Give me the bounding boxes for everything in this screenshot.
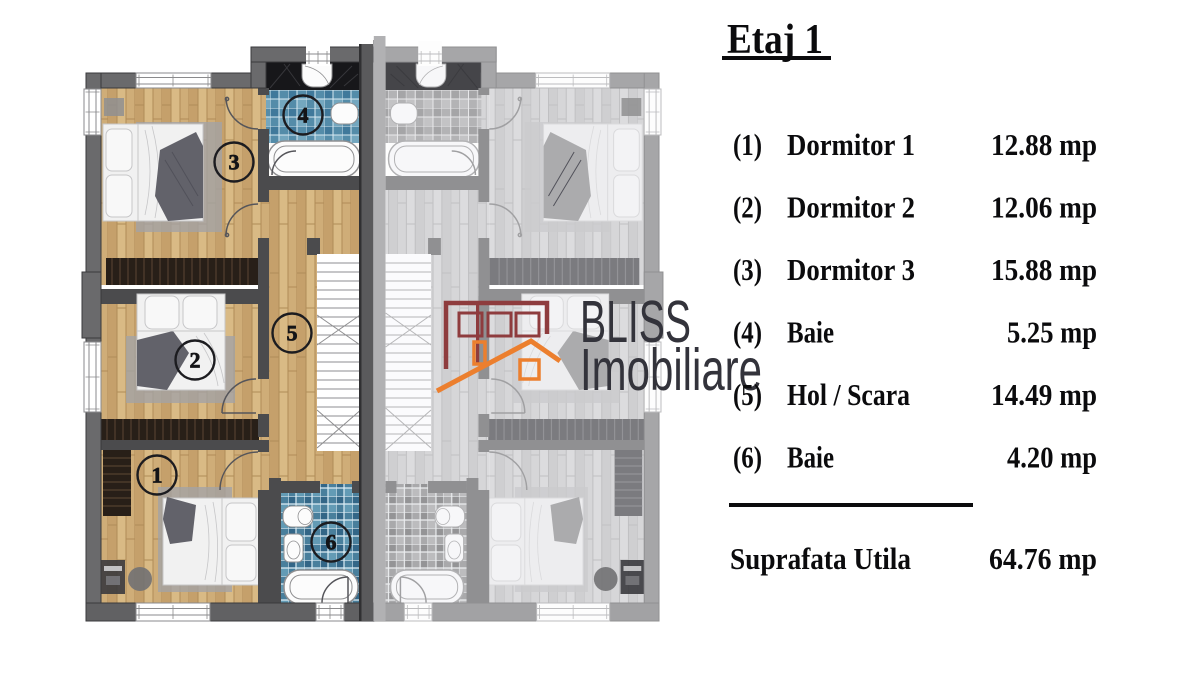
svg-text:12.88 mp: 12.88 mp bbox=[991, 127, 1097, 162]
svg-text:(6): (6) bbox=[733, 440, 762, 475]
svg-text:Dormitor 3: Dormitor 3 bbox=[787, 252, 915, 287]
svg-text:Hol / Scara: Hol / Scara bbox=[787, 377, 910, 412]
svg-text:12.06 mp: 12.06 mp bbox=[991, 190, 1097, 225]
svg-text:Dormitor 1: Dormitor 1 bbox=[787, 127, 915, 162]
svg-text:5.25 mp: 5.25 mp bbox=[1007, 315, 1097, 350]
svg-text:Baie: Baie bbox=[787, 315, 834, 350]
svg-text:6: 6 bbox=[326, 530, 337, 555]
svg-text:14.49 mp: 14.49 mp bbox=[991, 377, 1097, 412]
svg-text:4: 4 bbox=[298, 103, 309, 128]
svg-text:3: 3 bbox=[229, 150, 240, 175]
svg-text:4.20 mp: 4.20 mp bbox=[1007, 440, 1097, 475]
svg-text:64.76 mp: 64.76 mp bbox=[989, 541, 1097, 576]
svg-text:1: 1 bbox=[152, 463, 163, 488]
svg-text:Suprafata Utila: Suprafata Utila bbox=[730, 541, 911, 576]
svg-text:Baie: Baie bbox=[787, 440, 834, 475]
svg-text:(3): (3) bbox=[733, 252, 762, 287]
svg-text:5: 5 bbox=[287, 321, 298, 346]
svg-text:Dormitor 2: Dormitor 2 bbox=[787, 190, 915, 225]
svg-text:(1): (1) bbox=[733, 127, 762, 162]
svg-text:15.88 mp: 15.88 mp bbox=[991, 252, 1097, 287]
svg-text:(2): (2) bbox=[733, 190, 762, 225]
svg-text:2: 2 bbox=[190, 348, 201, 373]
svg-text:(4): (4) bbox=[733, 315, 762, 350]
svg-text:(5): (5) bbox=[733, 377, 762, 412]
